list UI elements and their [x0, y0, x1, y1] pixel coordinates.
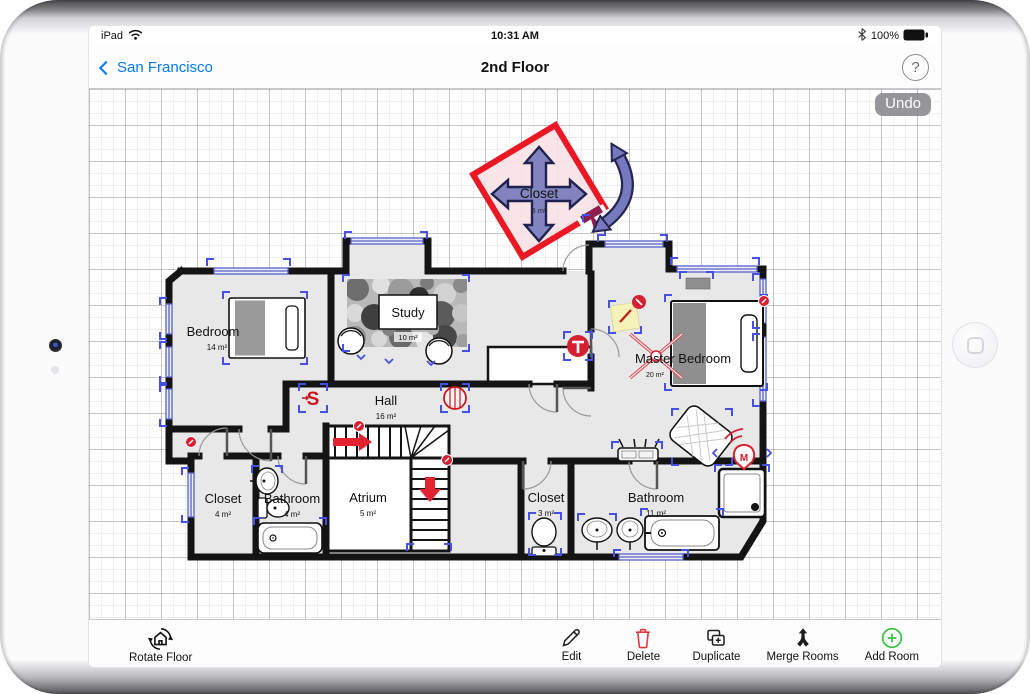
rotate-floor-button[interactable]: Rotate Floor: [129, 626, 192, 664]
radiator[interactable]: [686, 278, 710, 289]
bathtub[interactable]: [258, 523, 322, 553]
plus-circle-icon: [880, 626, 904, 650]
undo-button[interactable]: Undo: [875, 93, 931, 116]
svg-text:Bathroom: Bathroom: [264, 491, 320, 506]
bathtub[interactable]: [645, 516, 719, 550]
help-button[interactable]: ?: [902, 54, 929, 81]
screen: iPad 10:31 AM 100% 2nd Floor San Francis…: [88, 25, 942, 668]
master-bed[interactable]: [671, 301, 763, 386]
rotate-handle-icon[interactable]: [593, 144, 636, 237]
selected-room-area: 5 m²: [532, 206, 548, 215]
svg-text:Atrium: Atrium: [349, 490, 387, 505]
chair[interactable]: [338, 328, 364, 354]
svg-text:5 m²: 5 m²: [360, 509, 376, 518]
svg-text:4 m²: 4 m²: [215, 510, 231, 519]
selected-room-name: Closet: [520, 186, 559, 201]
stair-run-lower: [411, 458, 449, 551]
ipad-frame: iPad 10:31 AM 100% 2nd Floor San Francis…: [0, 0, 1030, 694]
home-button[interactable]: [952, 322, 998, 368]
selected-room-closet[interactable]: Closet 5 m²: [473, 125, 636, 259]
svg-text:Study: Study: [391, 305, 425, 320]
thermostat-icon[interactable]: T: [567, 335, 589, 357]
ceiling-light-icon[interactable]: [444, 387, 466, 409]
add-room-button[interactable]: Add Room: [865, 626, 919, 663]
toilet[interactable]: [532, 518, 556, 556]
pencil-icon: [559, 626, 583, 650]
front-camera-icon: [49, 339, 62, 352]
svg-text:3 m²: 3 m²: [538, 509, 554, 518]
clock: 10:31 AM: [89, 30, 941, 42]
merge-rooms-button[interactable]: Merge Rooms: [766, 626, 838, 663]
svg-text:Hall: Hall: [375, 393, 398, 408]
svg-text:10 m²: 10 m²: [398, 333, 418, 342]
svg-text:Closet: Closet: [205, 491, 242, 506]
svg-text:Master Bedroom: Master Bedroom: [635, 351, 731, 366]
trash-icon: [631, 626, 655, 650]
svg-text:Bathroom: Bathroom: [628, 490, 684, 505]
svg-text:S: S: [307, 389, 320, 410]
room-hall[interactable]: Hall 16 m²: [375, 393, 398, 421]
status-bar: iPad 10:31 AM 100%: [89, 26, 941, 46]
svg-text:11 m²: 11 m²: [646, 509, 666, 518]
chair[interactable]: [426, 338, 452, 364]
duplicate-button[interactable]: Duplicate: [692, 626, 740, 663]
svg-text:20 m²: 20 m²: [646, 372, 665, 379]
svg-text:Closet: Closet: [528, 490, 565, 505]
floorplan-canvas[interactable]: Undo: [89, 89, 941, 619]
navigation-bar: 2nd Floor San Francisco ?: [89, 46, 941, 89]
svg-text:4 m²: 4 m²: [284, 510, 300, 519]
shower[interactable]: [719, 469, 765, 517]
ambient-sensor-icon: [51, 366, 59, 374]
duplicate-icon: [704, 626, 728, 650]
svg-text:Bedroom: Bedroom: [187, 324, 240, 339]
merge-icon: [791, 626, 815, 650]
bottom-toolbar: Rotate Floor Edit: [89, 619, 941, 668]
delete-button[interactable]: Delete: [620, 626, 666, 663]
svg-text:14 m²: 14 m²: [207, 343, 228, 352]
floor-plan-svg: S T: [89, 89, 942, 619]
edit-button[interactable]: Edit: [548, 626, 594, 663]
svg-text:16 m²: 16 m²: [376, 412, 397, 421]
svg-text:M: M: [740, 453, 748, 464]
page-title: 2nd Floor: [89, 59, 941, 76]
bed[interactable]: [229, 298, 305, 358]
rotate-floor-icon: [147, 626, 174, 651]
